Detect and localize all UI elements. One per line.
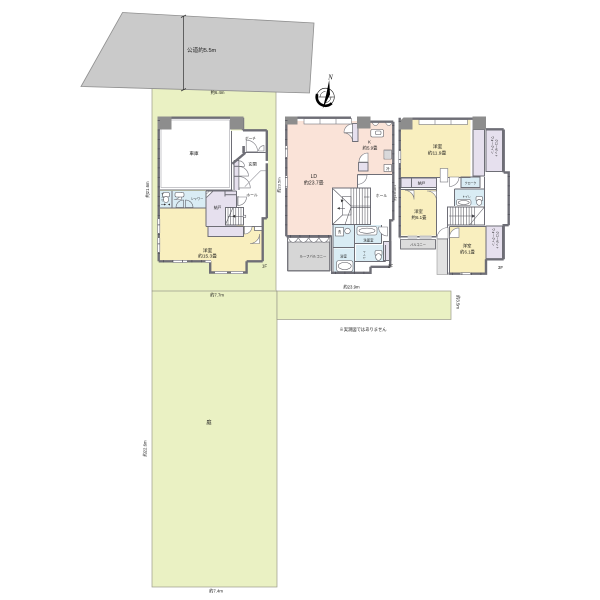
svg-text:ホール: ホール [246,193,258,198]
svg-text:クローゼット: クローゼット [495,139,500,157]
svg-text:洋室: 洋室 [203,247,213,254]
svg-text:車庫: 車庫 [189,150,199,157]
svg-text:玄関: 玄関 [248,161,256,168]
svg-text:約15.3畳: 約15.3畳 [198,253,217,260]
svg-text:約7.4m: 約7.4m [209,588,223,595]
svg-text:クローゼット: クローゼット [496,231,501,249]
svg-text:トイレ: トイレ [462,195,471,199]
svg-text:バルコニー: バルコニー [410,243,426,247]
svg-text:1F: 1F [262,264,268,269]
svg-text:約5.9畳: 約5.9畳 [363,145,378,152]
svg-text:納戸: 納戸 [214,205,222,210]
svg-text:トイレ: トイレ [363,250,367,259]
svg-text:洋室: 洋室 [433,143,443,150]
svg-text:K: K [368,140,371,145]
svg-text:シャワー: シャワー [191,196,204,201]
svg-text:※実測図ではありません: ※実測図ではありません [339,326,387,333]
svg-text:納戸: 納戸 [418,181,426,186]
svg-text:約7.7m: 約7.7m [210,292,224,299]
svg-text:約23.7畳: 約23.7畳 [304,179,324,186]
svg-text:トイレ: トイレ [161,192,165,202]
svg-text:約23.5m: 約23.5m [276,177,282,193]
svg-text:N: N [327,74,333,82]
svg-text:クローク: クローク [465,180,477,185]
svg-text:3F: 3F [498,265,504,270]
svg-text:2F: 2F [388,264,394,269]
svg-text:公道約5.5m: 公道約5.5m [187,46,217,54]
svg-text:約6.1畳: 約6.1畳 [412,214,427,221]
svg-text:冷: 冷 [386,166,390,171]
svg-text:約6.1畳: 約6.1畳 [460,248,475,255]
svg-text:ポーチ: ポーチ [245,136,256,141]
svg-text:庭: 庭 [206,418,211,426]
svg-text:約11.9畳: 約11.9畳 [428,150,447,157]
svg-text:LD: LD [311,174,318,180]
svg-text:約21.6m: 約21.6m [144,181,151,198]
svg-text:浴室: 浴室 [340,254,347,259]
svg-text:洗面室: 洗面室 [363,238,374,243]
svg-text:約22.6m: 約22.6m [141,440,148,457]
svg-text:約23.9m: 約23.9m [343,284,360,291]
svg-text:約3.5m: 約3.5m [455,295,462,309]
svg-text:ルーフバルコニー: ルーフバルコニー [300,254,327,259]
svg-text:ホール: ホール [376,193,388,198]
svg-text:約6.4m: 約6.4m [211,89,225,96]
